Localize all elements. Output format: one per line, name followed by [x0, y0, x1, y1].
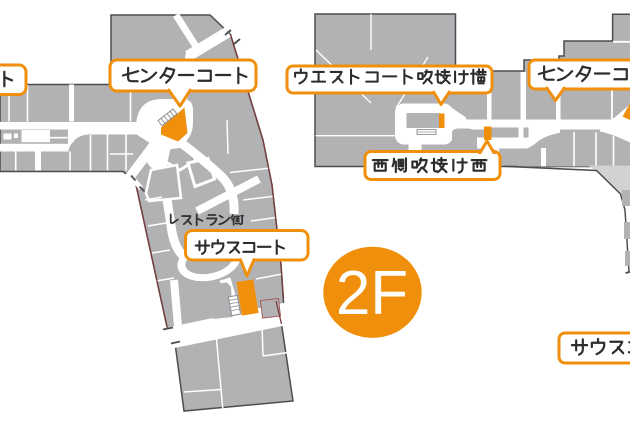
svg-text:2F: 2F [336, 259, 408, 328]
